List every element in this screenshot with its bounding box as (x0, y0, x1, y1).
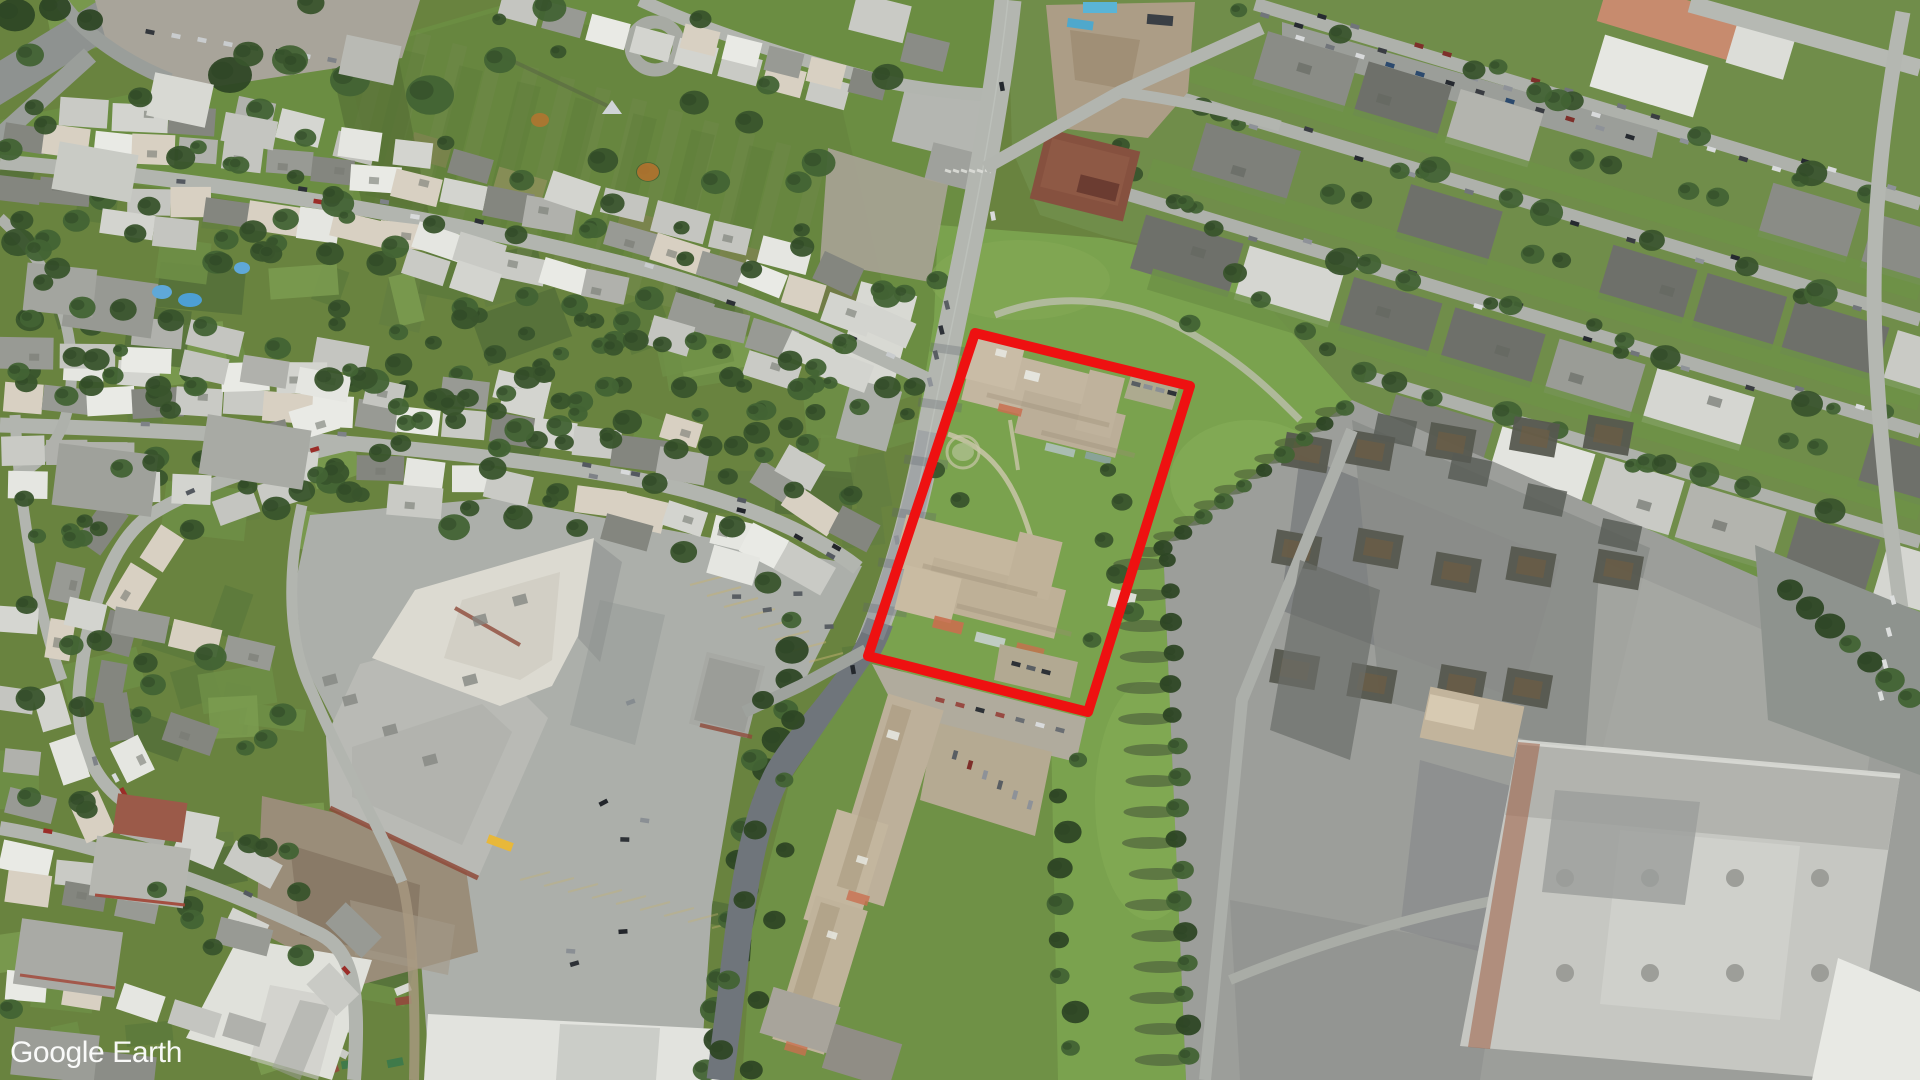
svg-text:Google Earth: Google Earth (10, 1036, 182, 1069)
